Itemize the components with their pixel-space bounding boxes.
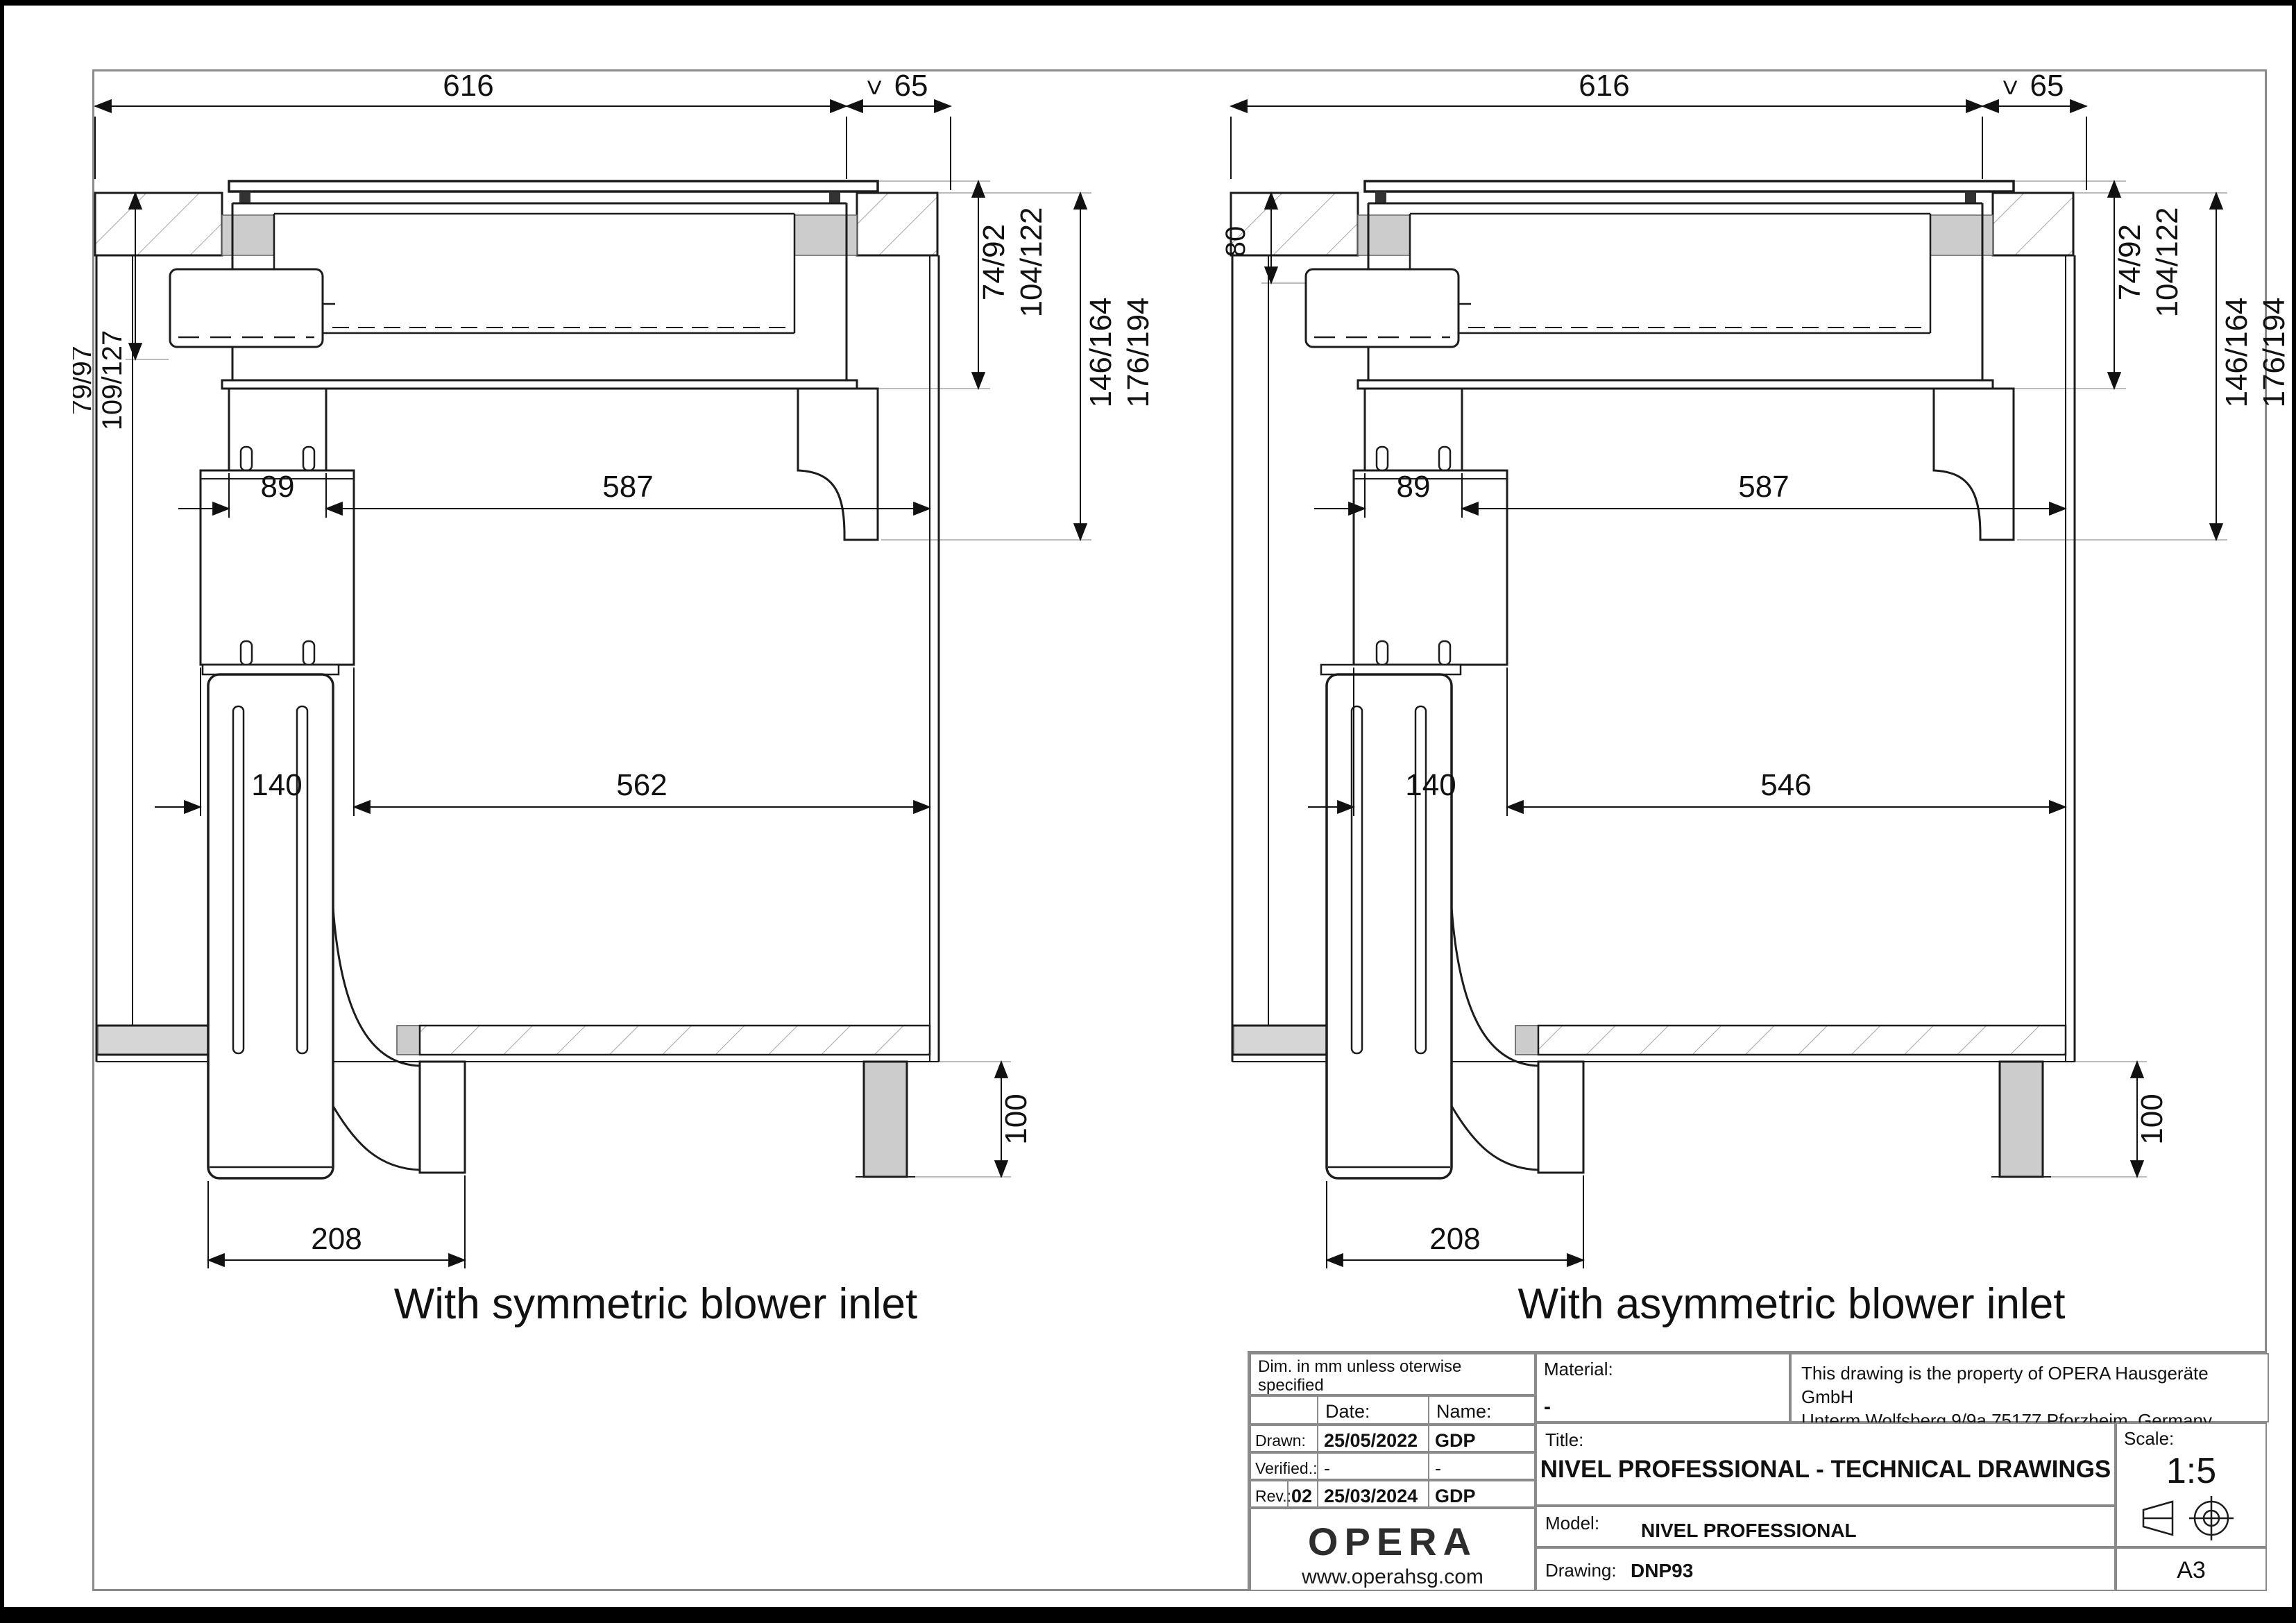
dim-hob-depth-b: 104/122 xyxy=(2150,207,2184,317)
dim-hob-depth-a: 74/92 xyxy=(977,224,1011,300)
drawing-number-cell: Drawing: DNP93 xyxy=(1536,1547,2116,1591)
dim-install-depth-a: 146/164 xyxy=(1084,297,1118,407)
blower-inlet-slot xyxy=(297,706,307,1053)
dim-duct-width: 89 xyxy=(1397,470,1431,504)
paper-size-cell: A3 xyxy=(2116,1547,2267,1591)
page-border-left xyxy=(0,0,4,1623)
cabinet-leg xyxy=(2000,1062,2043,1177)
blower-inlet-slot xyxy=(1415,706,1426,1053)
blower-box-140 xyxy=(1354,470,1507,665)
connection-box xyxy=(1306,269,1459,347)
title-label: Title: xyxy=(1545,1429,1583,1451)
technical-drawing-sheet: { "drawings": { "symmetric": { "caption"… xyxy=(0,0,2296,1623)
page-border-right xyxy=(2292,0,2296,1623)
dim-clearance-lower: 546 xyxy=(1760,768,1811,802)
dim-min-symbol: > xyxy=(1995,79,2025,95)
dim-side-clearance: 65 xyxy=(2030,69,2064,103)
cabinet-leg xyxy=(864,1062,907,1177)
revision-date: 25/03/2024 xyxy=(1317,1481,1428,1506)
revision-label: Rev.: xyxy=(1251,1481,1287,1506)
dim-box-width: 140 xyxy=(1405,768,1456,802)
outlet-flange xyxy=(420,1062,465,1173)
dim-clearance-lower: 562 xyxy=(616,768,667,802)
first-angle-projection-icon xyxy=(2136,1496,2247,1540)
glass-top xyxy=(229,181,878,192)
dim-hob-depth-a: 74/92 xyxy=(2113,224,2147,300)
dim-duct-width: 89 xyxy=(261,470,295,504)
material-label: Material: xyxy=(1544,1359,1782,1380)
air-outlet-funnel xyxy=(798,389,878,540)
revision-number: 02 xyxy=(1287,1481,1317,1506)
dim-hob-depth-b: 104/122 xyxy=(1014,207,1048,317)
dim-left-depth-b: 109/127 xyxy=(97,330,128,431)
verified-label: Verified.: xyxy=(1251,1454,1317,1479)
dim-top-width: 616 xyxy=(443,69,493,103)
dim-clearance-upper: 587 xyxy=(1738,470,1789,504)
connection-box xyxy=(170,269,323,347)
duct-and-blower xyxy=(201,389,465,1178)
dim-blower-width: 208 xyxy=(311,1222,362,1256)
property-notice-line1: This drawing is the property of OPERA Ha… xyxy=(1801,1361,2258,1409)
dim-box-width: 140 xyxy=(251,768,302,802)
scale-cell: Scale: 1:5 xyxy=(2116,1422,2267,1547)
date-column-header: Date: xyxy=(1317,1397,1428,1423)
outlet-flange xyxy=(1538,1062,1583,1173)
dim-side-clearance: 65 xyxy=(894,69,928,103)
dim-install-depth-a: 146/164 xyxy=(2220,297,2254,407)
dim-leg-height: 100 xyxy=(999,1094,1033,1144)
name-column-header: Name: xyxy=(1428,1397,1537,1423)
drawn-row: Drawn: 25/05/2022 GDP xyxy=(1250,1425,1536,1452)
dim-blower-width: 208 xyxy=(1429,1222,1480,1256)
dim-min-symbol: > xyxy=(859,79,890,95)
asymmetric-blower-drawing: 616 > 65 74/92 104/122 146/164 176/194 8… xyxy=(1209,54,2291,1345)
title-cell: Title: NIVEL PROFESSIONAL - TECHNICAL DR… xyxy=(1536,1422,2116,1506)
scale-label: Scale: xyxy=(2124,1428,2174,1450)
property-notice-cell: This drawing is the property of OPERA Ha… xyxy=(1790,1353,2269,1422)
page-border-bottom xyxy=(0,1607,2296,1623)
company-website: www.operahsg.com xyxy=(1251,1565,1534,1589)
blower-body xyxy=(1327,674,1452,1178)
model-label: Model: xyxy=(1545,1513,1599,1534)
dim-leg-height: 100 xyxy=(2135,1094,2169,1144)
material-value: - xyxy=(1544,1395,1782,1419)
air-outlet-funnel xyxy=(1934,389,2014,540)
page-border-top xyxy=(0,0,2296,6)
drawn-label: Drawn: xyxy=(1251,1426,1317,1451)
caption-symmetric: With symmetric blower inlet xyxy=(394,1280,917,1328)
opera-logo: OPERA xyxy=(1251,1519,1534,1564)
model-value: NIVEL PROFESSIONAL xyxy=(1641,1520,1857,1542)
glass-top xyxy=(1365,181,2014,192)
tolerance-note: Dim. in mm unless oterwise specified Tol… xyxy=(1250,1353,1536,1395)
title-block: Dim. in mm unless oterwise specified Tol… xyxy=(1248,1351,2267,1591)
drawn-date: 25/05/2022 xyxy=(1317,1426,1428,1451)
tolerance-note-line1: Dim. in mm unless oterwise specified xyxy=(1258,1357,1527,1395)
dim-install-depth-b: 176/194 xyxy=(2257,297,2291,407)
drawing-label: Drawing: xyxy=(1545,1560,1617,1581)
revision-name: GDP xyxy=(1428,1481,1537,1506)
revision-row: Rev.: 02 25/03/2024 GDP xyxy=(1250,1480,1536,1508)
dim-install-depth-b: 176/194 xyxy=(1121,297,1155,407)
drawn-name: GDP xyxy=(1428,1426,1537,1451)
verified-row: Verified.: - - xyxy=(1250,1452,1536,1480)
drawing-value: DNP93 xyxy=(1631,1560,1693,1582)
dim-top-width: 616 xyxy=(1579,69,1629,103)
dim-left-depth-a: 79/97 xyxy=(73,346,97,415)
verified-date: - xyxy=(1317,1454,1428,1479)
symmetric-blower-drawing: 616 > 65 74/92 104/122 146/164 176/194 7… xyxy=(73,54,1155,1345)
verified-name: - xyxy=(1428,1454,1537,1479)
history-header-row: Date: Name: xyxy=(1250,1395,1536,1425)
blower-inlet-slot xyxy=(233,706,244,1053)
material-cell: Material: - xyxy=(1536,1353,1790,1422)
dim-left-depth: 80 xyxy=(1221,226,1251,257)
title-value: NIVEL PROFESSIONAL - TECHNICAL DRAWINGS xyxy=(1537,1456,2114,1484)
caption-asymmetric: With asymmetric blower inlet xyxy=(1518,1280,2066,1328)
company-logo-cell: OPERA www.operahsg.com xyxy=(1250,1508,1536,1591)
blower-body xyxy=(208,674,333,1178)
model-cell: Model: NIVEL PROFESSIONAL xyxy=(1536,1506,2116,1547)
scale-value: 1:5 xyxy=(2117,1450,2265,1492)
dim-clearance-upper: 587 xyxy=(602,470,653,504)
